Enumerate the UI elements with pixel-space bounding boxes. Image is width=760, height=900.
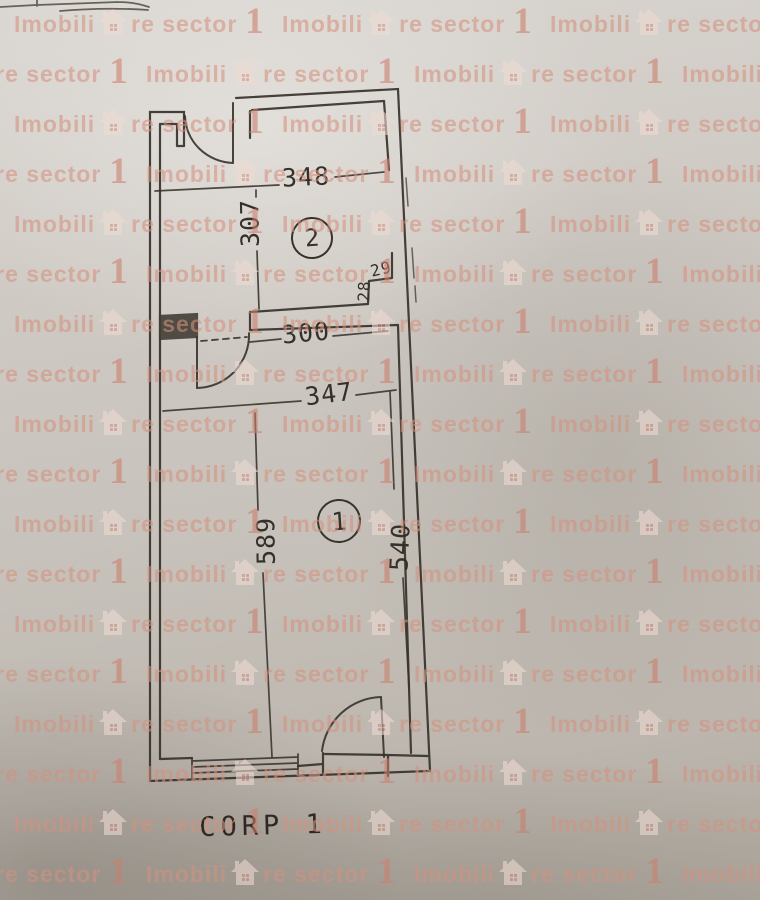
room-1-number: 1: [330, 506, 347, 536]
room-1-badge: 1: [316, 498, 363, 545]
dimension-540: 540: [384, 522, 415, 572]
dimension-348: 348: [281, 161, 331, 192]
plan-title: CORP 1: [199, 809, 327, 843]
label-layer: 348 307 29 28 300 347 589 540 2 1 CORP 1: [0, 0, 760, 900]
dimension-589: 589: [251, 517, 281, 566]
dimension-307: 307: [235, 199, 265, 248]
dimension-28: 28: [354, 280, 374, 302]
room-2-badge: 2: [290, 216, 335, 261]
dimension-29: 29: [369, 257, 394, 280]
floor-plan-photo: 348 307 29 28 300 347 589 540 2 1 CORP 1…: [0, 0, 760, 900]
dimension-300: 300: [281, 316, 332, 349]
room-2-number: 2: [304, 224, 320, 253]
dimension-347: 347: [303, 377, 354, 412]
